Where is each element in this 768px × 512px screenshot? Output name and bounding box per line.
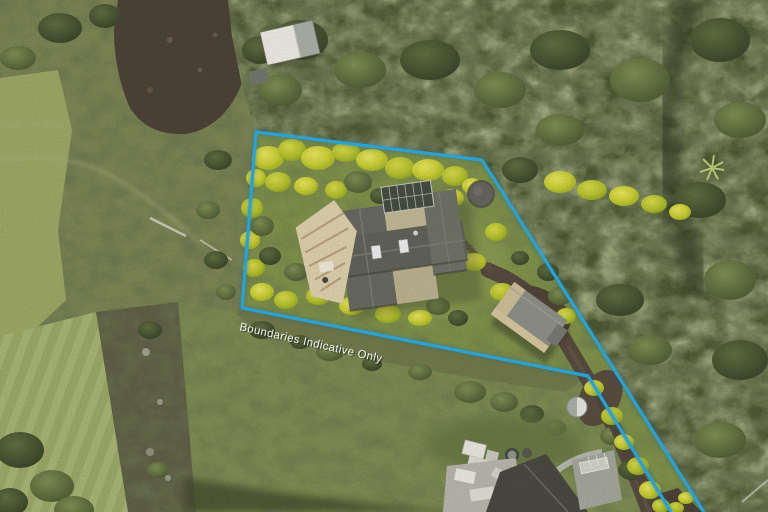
aerial-listing-photo: Boundaries Indicative Only Boundaries In… <box>0 0 768 512</box>
photo-grain <box>0 0 768 512</box>
aerial-photo-canvas: Boundaries Indicative Only Boundaries In… <box>0 0 768 512</box>
